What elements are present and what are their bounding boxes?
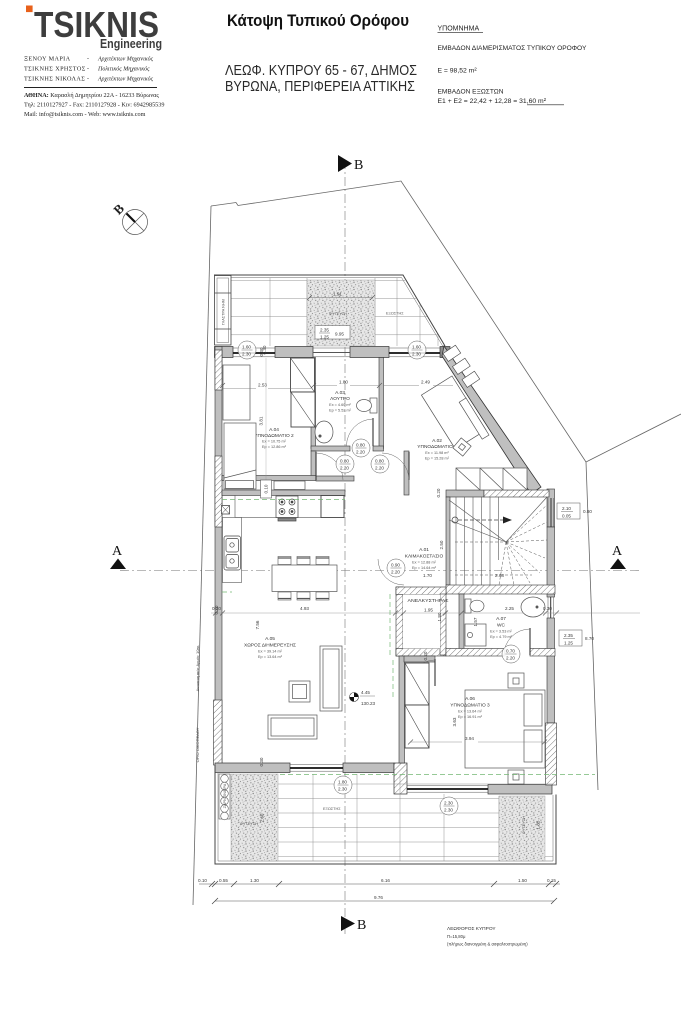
svg-text:ΦΥΤΕΥΣΗ: ΦΥΤΕΥΣΗ [240, 822, 258, 826]
svg-text:2.10: 2.10 [562, 506, 571, 511]
svg-text:B: B [357, 918, 366, 933]
svg-text:0.80: 0.80 [340, 459, 349, 464]
svg-text:ΕΜΒΑΔΟΝ ΔΙΑΜΕΡΙΣΜΑΤΟΣ ΤΥΠΙΚΟΥ: ΕΜΒΑΔΟΝ ΔΙΑΜΕΡΙΣΜΑΤΟΣ ΤΥΠΙΚΟΥ ΟΡΟΦΟΥ [438, 45, 587, 52]
svg-text:ΛΟΥΤΡΟ: ΛΟΥΤΡΟ [330, 396, 350, 402]
svg-text:130.23: 130.23 [361, 701, 375, 706]
svg-text:1.95: 1.95 [424, 608, 433, 613]
svg-text:0.55: 0.55 [219, 878, 228, 883]
svg-text:ΥΠΝΟΔΩΜΑΤΙΟ 2: ΥΠΝΟΔΩΜΑΤΙΟ 2 [254, 433, 294, 439]
svg-text:3.94: 3.94 [465, 736, 474, 741]
svg-text:ΒΥΡΩΝΑ, ΠΕΡΙΦΕΡΕΙΑ ΑΤΤΙΚΗΣ: ΒΥΡΩΝΑ, ΠΕΡΙΦΕΡΕΙΑ ΑΤΤΙΚΗΣ [225, 79, 415, 95]
svg-text:2.20: 2.20 [340, 466, 349, 471]
svg-text:0.10: 0.10 [264, 484, 269, 493]
svg-text:Ex = 10.75 m²: Ex = 10.75 m² [262, 440, 286, 444]
svg-text:Ep = 13.64 m²: Ep = 13.64 m² [258, 655, 283, 659]
svg-text:A.03: A.03 [335, 390, 345, 396]
svg-text:A: A [612, 544, 623, 559]
svg-text:0.30: 0.30 [259, 757, 264, 766]
svg-text:ΑΘΗΝΑ: Καρασλή Δημητρίου 22Α: ΑΘΗΝΑ: Καρασλή Δημητρίου 22Α - 16233 Βύρ… [24, 92, 159, 99]
svg-text:2.30: 2.30 [242, 352, 251, 357]
svg-text:2.20: 2.20 [391, 570, 400, 575]
svg-text:7.56: 7.56 [255, 620, 260, 629]
svg-text:ΦΥΤΕΥΣΗ: ΦΥΤΕΥΣΗ [522, 816, 526, 834]
svg-text:0.20: 0.20 [423, 651, 428, 660]
svg-text:2.30: 2.30 [412, 352, 421, 357]
svg-text:2.30: 2.30 [338, 787, 347, 792]
svg-text:9.95: 9.95 [335, 332, 344, 337]
svg-text:E1 + E2 = 22,42 + 12,28 = 31,: E1 + E2 = 22,42 + 12,28 = 31,60 m² [438, 98, 547, 105]
svg-text:0.80: 0.80 [356, 443, 365, 448]
svg-text:1.60: 1.60 [412, 345, 421, 350]
svg-text:0.80: 0.80 [375, 459, 384, 464]
svg-text:ΛΕΩΦΟΡΟΣ ΚΥΠΡΟΥ: ΛΕΩΦΟΡΟΣ ΚΥΠΡΟΥ [447, 926, 496, 932]
svg-text:1.60: 1.60 [242, 345, 251, 350]
svg-text:A: A [112, 544, 123, 559]
svg-text:ΕΞΩΣΤΗΣ: ΕΞΩΣΤΗΣ [323, 807, 341, 811]
svg-text:ΕΜΒΑΔΟΝ ΕΞΩΣΤΩΝ: ΕΜΒΑΔΟΝ ΕΞΩΣΤΩΝ [438, 89, 504, 96]
svg-text:ΤΣΙΚΝΗΣ ΧΡΗΣΤΟΣ: ΤΣΙΚΝΗΣ ΧΡΗΣΤΟΣ [24, 66, 86, 73]
svg-text:-: - [87, 67, 89, 73]
svg-text:4.93: 4.93 [300, 606, 309, 611]
svg-text:Κάτοψη Τυπικού Ορόφου: Κάτοψη Τυπικού Ορόφου [227, 11, 409, 30]
svg-text:9.76: 9.76 [374, 895, 383, 900]
svg-text:ΤΣΙΚΝΗΣ ΝΙΚΟΛΑΣ: ΤΣΙΚΝΗΣ ΝΙΚΟΛΑΣ [24, 76, 85, 83]
svg-text:(πλήρως διανοιγμένη & ασφαλτοσ: (πλήρως διανοιγμένη & ασφαλτοστρωμένη) [447, 942, 528, 947]
svg-text:Ex = 12.88 m²: Ex = 12.88 m² [412, 561, 436, 565]
svg-text:Αρχιτέκτων Μηχανικός: Αρχιτέκτων Μηχανικός [97, 57, 154, 63]
svg-text:ΥΠΟΜΝΗΜΑ: ΥΠΟΜΝΗΜΑ [438, 26, 480, 33]
svg-text:0.90: 0.90 [391, 563, 400, 568]
svg-text:Ep = 16.91 m²: Ep = 16.91 m² [458, 715, 483, 719]
svg-text:A.02: A.02 [432, 438, 442, 444]
svg-text:-: - [87, 57, 89, 63]
svg-text:A.04: A.04 [269, 427, 279, 433]
svg-text:ΛΕΩΦ. ΚΥΠΡΟΥ 65 - 67, ΔΗΜΟΣ: ΛΕΩΦ. ΚΥΠΡΟΥ 65 - 67, ΔΗΜΟΣ [225, 63, 417, 79]
svg-text:2.30: 2.30 [444, 801, 453, 806]
svg-text:3.81: 3.81 [259, 416, 264, 425]
svg-text:3.63: 3.63 [452, 717, 457, 726]
svg-text:Π=15,80μ: Π=15,80μ [447, 934, 466, 939]
svg-text:ΚΛΙΜΑΚΟΣΤΑΣΙΟ: ΚΛΙΜΑΚΟΣΤΑΣΙΟ [405, 554, 444, 560]
svg-text:1.85: 1.85 [536, 820, 541, 829]
svg-text:1.25: 1.25 [564, 641, 573, 646]
svg-text:1.70: 1.70 [423, 573, 432, 578]
svg-text:Ex = 13.64 m²: Ex = 13.64 m² [458, 710, 482, 714]
svg-text:Αρχιτέκτων Μηχανικός: Αρχιτέκτων Μηχανικός [97, 77, 154, 83]
svg-text:1.80: 1.80 [339, 380, 348, 385]
svg-text:2.30: 2.30 [444, 808, 453, 813]
svg-text:2.68: 2.68 [495, 573, 504, 578]
svg-text:0.30: 0.30 [543, 606, 552, 611]
svg-text:2.20: 2.20 [375, 466, 384, 471]
svg-text:Τηλ: 2110127927 - Fax: 2110127: Τηλ: 2110127927 - Fax: 2110127928 - Κιν:… [24, 102, 164, 109]
svg-text:0.20: 0.20 [436, 488, 441, 497]
svg-text:0.05: 0.05 [562, 514, 571, 519]
svg-text:1.80: 1.80 [338, 780, 347, 785]
svg-text:-: - [87, 77, 89, 83]
svg-text:Ex = 4.60 m²: Ex = 4.60 m² [329, 403, 351, 407]
svg-text:1.50: 1.50 [518, 878, 527, 883]
svg-text:2.35: 2.35 [320, 328, 329, 333]
svg-text:0.70: 0.70 [506, 649, 515, 654]
svg-text:Ep = 4.79 m²: Ep = 4.79 m² [490, 635, 513, 639]
svg-text:ΑΝΕΛΚΥΣΤΗΡΑΣ: ΑΝΕΛΚΥΣΤΗΡΑΣ [408, 598, 449, 604]
svg-text:ΦΥΤΕΥΣΗ: ΦΥΤΕΥΣΗ [329, 312, 347, 316]
svg-text:2.20: 2.20 [356, 450, 365, 455]
svg-text:A.01: A.01 [419, 547, 429, 553]
svg-text:ΥΠΝΟΔΩΜΑΤΙΟ 1: ΥΠΝΟΔΩΜΑΤΙΟ 1 [417, 444, 457, 450]
svg-text:2.35: 2.35 [564, 633, 573, 638]
svg-text:2.60: 2.60 [260, 813, 265, 822]
svg-text:ΓΛΑΣΤΡΑ ΝΗΜ: ΓΛΑΣΤΡΑ ΝΗΜ [222, 299, 226, 325]
svg-text:0.10: 0.10 [198, 878, 207, 883]
svg-text:Ep = 14.64 m²: Ep = 14.64 m² [412, 566, 437, 570]
svg-text:Πολιτικός Μηχανικός: Πολιτικός Μηχανικός [97, 67, 150, 73]
svg-text:ΟΡΙΟ ΟΙΚΟΠΕΔΟΥ: ΟΡΙΟ ΟΙΚΟΠΕΔΟΥ [195, 727, 200, 762]
svg-text:2.20: 2.20 [506, 656, 515, 661]
svg-text:1.30: 1.30 [250, 878, 259, 883]
svg-text:Ep = 5.52 m²: Ep = 5.52 m² [329, 409, 352, 413]
svg-text:Ep = 12.86 m²: Ep = 12.86 m² [262, 445, 287, 449]
svg-text:Ep = 15.28 m²: Ep = 15.28 m² [425, 457, 450, 461]
svg-text:1.91: 1.91 [333, 292, 342, 297]
svg-text:WC: WC [497, 623, 506, 629]
svg-text:0.30: 0.30 [262, 345, 267, 354]
svg-text:ΞΕΝΟΥ ΜΑΡΙΑ: ΞΕΝΟΥ ΜΑΡΙΑ [24, 56, 71, 63]
svg-text:2.25: 2.25 [505, 606, 514, 611]
svg-text:1.80: 1.80 [437, 612, 442, 621]
svg-text:2.49: 2.49 [421, 380, 430, 385]
svg-text:A.07: A.07 [496, 616, 506, 622]
svg-text:Mail: info@tsiknis.com - Web:: Mail: info@tsiknis.com - Web: www.tsikni… [24, 111, 146, 118]
svg-text:ΥΠΝΟΔΩΜΑΤΙΟ 3: ΥΠΝΟΔΩΜΑΤΙΟ 3 [450, 703, 490, 709]
svg-text:8.70: 8.70 [585, 636, 594, 641]
svg-text:Engineering: Engineering [100, 37, 162, 51]
svg-text:1.25: 1.25 [320, 335, 329, 340]
svg-text:2.50: 2.50 [439, 540, 444, 549]
svg-text:ΧΩΡΟΣ ΔΙΗΜΕΡΕΥΣΗΣ: ΧΩΡΟΣ ΔΙΗΜΕΡΕΥΣΗΣ [244, 643, 296, 649]
svg-text:1.57: 1.57 [473, 617, 478, 626]
svg-text:Αντισεισμικός Αρμός 10εκ.: Αντισεισμικός Αρμός 10εκ. [195, 645, 200, 692]
svg-text:6.16: 6.16 [381, 878, 390, 883]
svg-text:ΖΑΡΝΤΙΝΙΕΡΑ: ΖΑΡΝΤΙΝΙΕΡΑ [223, 783, 227, 808]
svg-text:Ex = 3.53 m²: Ex = 3.53 m² [490, 630, 512, 634]
svg-text:ΕΞΩΣΤΗΣ: ΕΞΩΣΤΗΣ [386, 312, 404, 316]
svg-text:4.45: 4.45 [361, 690, 370, 695]
svg-text:A.06: A.06 [465, 696, 475, 702]
svg-text:Ex = 39.14 m²: Ex = 39.14 m² [258, 650, 282, 654]
svg-text:A.05: A.05 [265, 636, 275, 642]
svg-text:E = 98,52 m²: E = 98,52 m² [438, 68, 478, 75]
svg-text:Ex = 11.98 m²: Ex = 11.98 m² [425, 451, 449, 455]
svg-text:B: B [354, 158, 363, 173]
svg-text:0.20: 0.20 [214, 605, 219, 614]
svg-text:0.15: 0.15 [547, 878, 556, 883]
svg-text:0.80: 0.80 [583, 509, 592, 514]
